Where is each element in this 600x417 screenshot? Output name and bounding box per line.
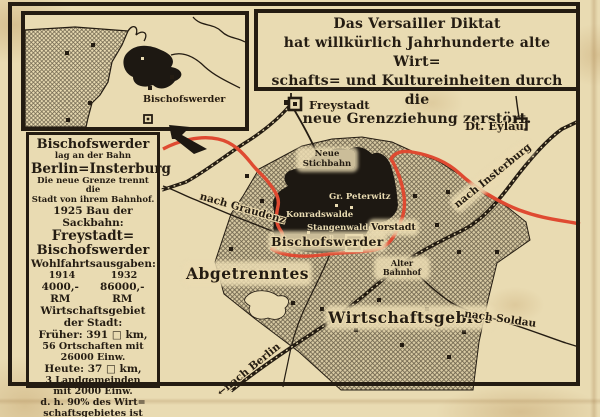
panel-note-1: Die neue Grenze trennt die: [31, 177, 155, 196]
map-label-dt-eylau: Dt. Eylau: [465, 119, 524, 133]
panel-earlier-1: Früher: 391 □ km,: [31, 329, 155, 341]
amount-1932: 86000,- RM: [90, 281, 156, 305]
headline-line-1: Das Versailler Diktat: [258, 15, 576, 34]
panel-branch-1: Freystadt=: [31, 229, 155, 244]
map-label-neue-stichbahn: Neue Stichbahn: [299, 150, 355, 169]
map-label-bischofswerder: Bischofswerder: [271, 234, 384, 249]
headline-line-3: schafts= und Kultureinheiten durch die: [258, 72, 576, 110]
panel-railway: Berlin=Insterburg: [31, 162, 155, 177]
map-label-vorstadt: Vorstadt: [371, 222, 416, 233]
map-label-bahnhof: Bahnhof: [377, 268, 427, 277]
inset-white-dot: [141, 57, 144, 60]
pointer-arrow-icon: [160, 118, 220, 163]
info-panel: Bischofswerder lag an der Bahn Berlin=In…: [26, 132, 160, 388]
postcard: Freystadt Dt. Eylau Neue Stichbahn Gr. P…: [0, 0, 600, 417]
panel-today-1: Heute: 37 □ km,: [31, 363, 155, 375]
map-label-abgetrenntes: Abgetrenntes: [186, 264, 309, 283]
inset-label-bischofswerder: Bischofswerder: [143, 94, 225, 105]
panel-note-2: Stadt von ihrem Bahnhof.: [31, 196, 155, 206]
panel-welfare-years: 1914 1932: [31, 270, 155, 281]
panel-loss-1: d. h. 90% des Wirt=: [31, 397, 155, 408]
inset-map: Bischofswerder: [21, 11, 249, 131]
panel-today-3: mit 2000 Einw.: [31, 386, 155, 397]
panel-earlier-3: 26000 Einw.: [31, 352, 155, 363]
inset-map-canvas: [25, 15, 245, 127]
map-label-stangenwalde: Stangenwalde: [307, 223, 374, 233]
map-label-stichbahn: Stichbahn: [299, 160, 355, 170]
panel-today-2: 3 Landgemeinden: [31, 375, 155, 386]
panel-loss-2: schaftsgebietes ist ver=: [31, 408, 155, 417]
headline-line-4: neue Grenzziehung zerstört.: [258, 110, 576, 129]
amount-1914: 4000,- RM: [31, 281, 90, 305]
inset-black-region: [123, 46, 181, 89]
inset-hatched-region: [25, 27, 128, 127]
panel-econ-title-1: Wirtschaftsgebiet: [31, 305, 155, 317]
panel-earlier-2: 56 Ortschaften mit: [31, 341, 155, 352]
panel-title: Bischofswerder: [31, 138, 155, 152]
panel-welfare-amounts: 4000,- RM 86000,- RM: [31, 281, 155, 305]
headline-box: Das Versailler Diktat hat willkürlich Ja…: [254, 9, 580, 91]
panel-sackbahn: 1925 Bau der Sackbahn:: [31, 205, 155, 229]
map-label-freystadt: Freystadt: [309, 98, 370, 112]
headline-line-2: hat willkürlich Jahrhunderte alte Wirt=: [258, 34, 576, 72]
inset-town-marker: [144, 115, 152, 123]
panel-econ-title-2: der Stadt:: [31, 317, 155, 329]
map-label-alter-bahnhof: Alter Bahnhof: [377, 259, 427, 277]
panel-branch-2: Bischofswerder: [31, 244, 155, 258]
year-1932: 1932: [111, 270, 137, 281]
map-label-gr-peterwitz: Gr. Peterwitz: [329, 192, 391, 202]
year-1914: 1914: [49, 270, 75, 281]
panel-welfare-title: Wohlfahrtsausgaben:: [31, 258, 155, 270]
